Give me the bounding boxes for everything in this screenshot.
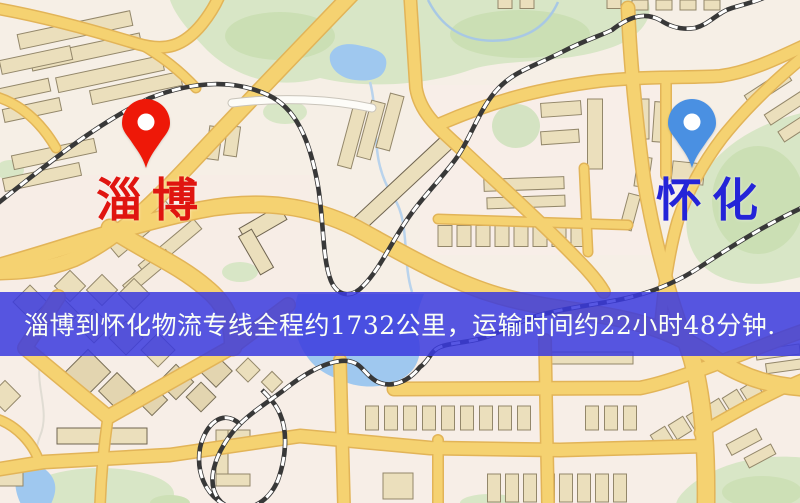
origin-pin-shape: [122, 99, 170, 168]
route-info-text: 淄博到怀化物流专线全程约1732公里，运输时间约22小时48分钟.: [24, 306, 776, 342]
origin-pin-hole: [138, 114, 155, 131]
origin-pin-icon: [120, 98, 172, 170]
street-map-image: [0, 0, 800, 503]
destination-pin-hole: [684, 114, 701, 131]
origin-city-label: 淄博: [52, 176, 252, 224]
destination-pin-shape: [668, 99, 716, 168]
route-info-banner: 淄博到怀化物流专线全程约1732公里，运输时间约22小时48分钟.: [0, 292, 800, 356]
destination-city-label: 怀化: [612, 176, 800, 224]
destination-pin-icon: [666, 98, 718, 170]
map-canvas: 淄博 怀化 淄博到怀化物流专线全程约1732公里，运输时间约22小时48分钟.: [0, 0, 800, 503]
